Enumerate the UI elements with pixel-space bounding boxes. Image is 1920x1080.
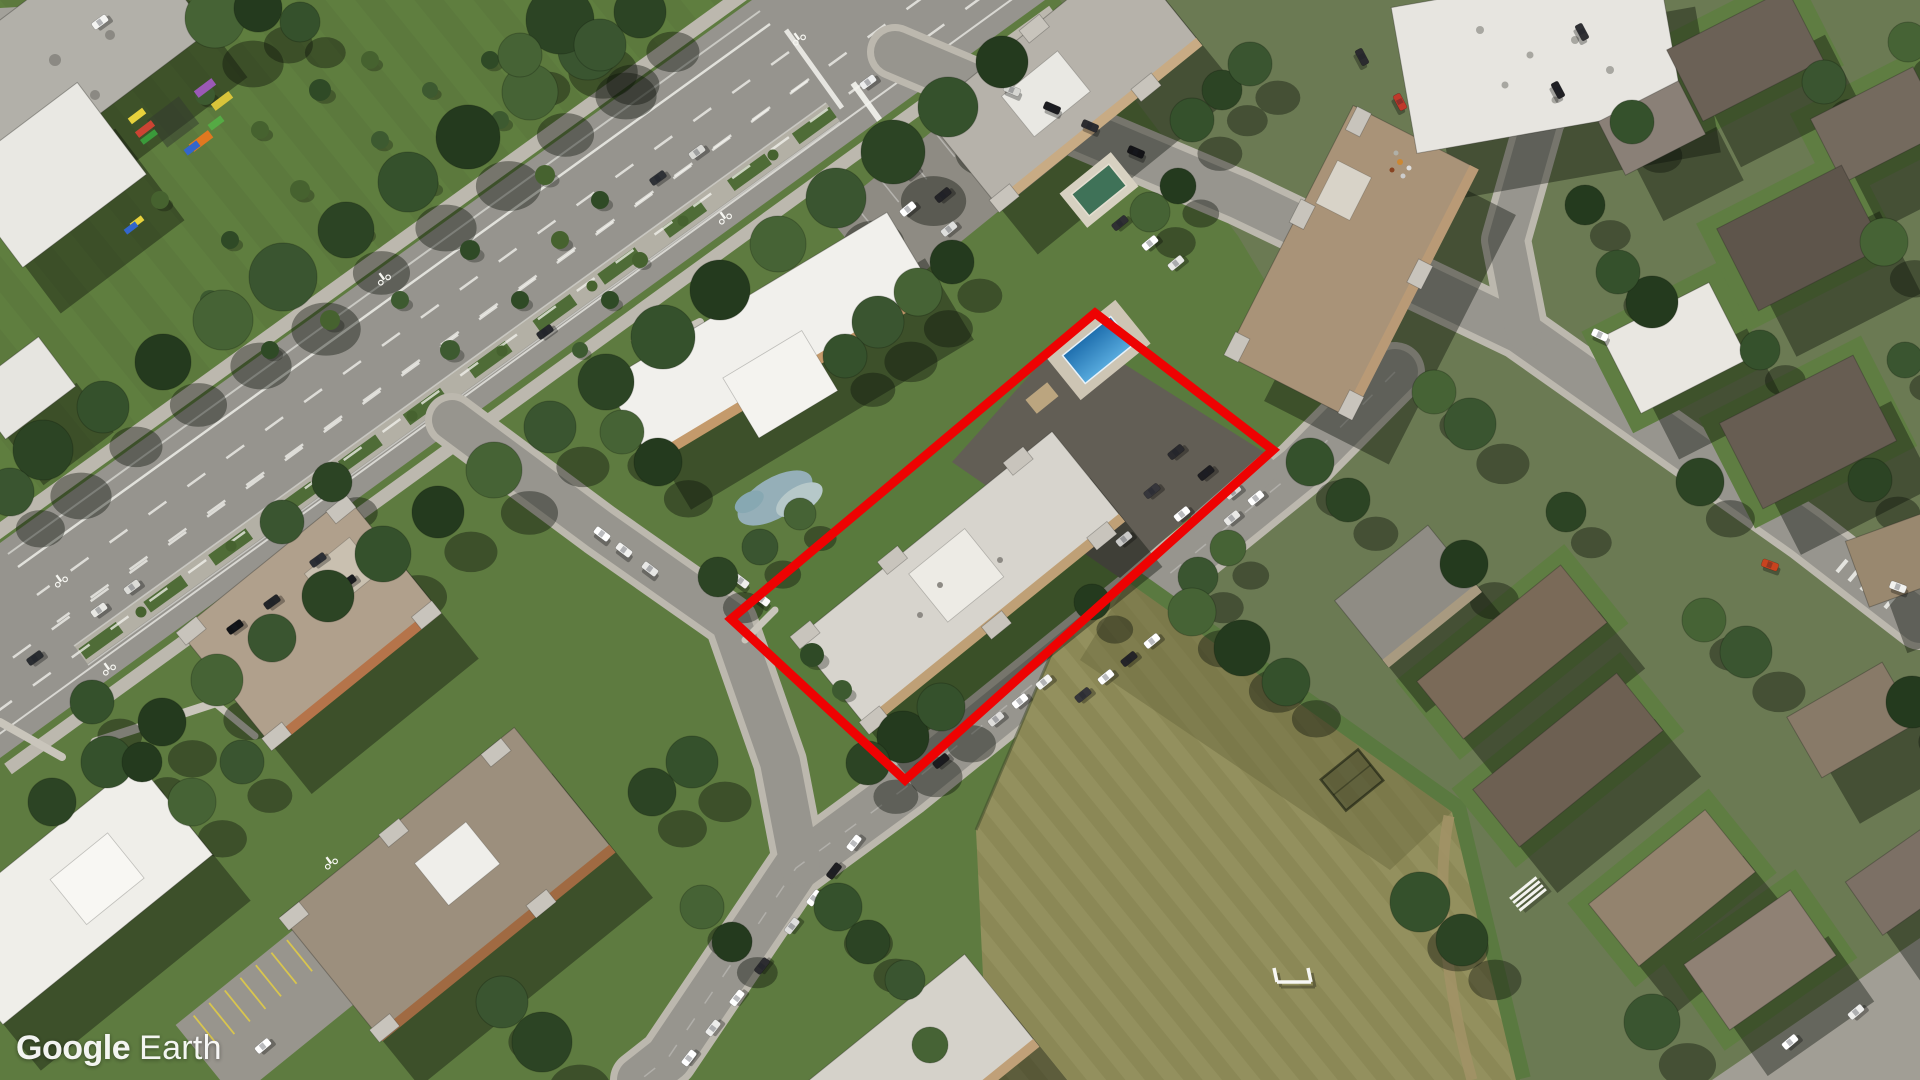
tree <box>28 778 76 826</box>
tree <box>498 33 542 77</box>
tree <box>378 152 438 212</box>
tree <box>1860 218 1908 266</box>
tree <box>466 442 522 498</box>
tree <box>666 736 718 788</box>
tree <box>1262 658 1310 706</box>
tree <box>861 120 925 184</box>
shrub <box>535 165 555 185</box>
tree <box>1168 588 1216 636</box>
tree <box>784 498 816 530</box>
tree <box>312 462 352 502</box>
tree <box>1444 398 1496 450</box>
tree <box>1802 60 1846 104</box>
shrub <box>290 180 310 200</box>
shrub <box>309 79 331 101</box>
google-earth-watermark: GoogleEarth <box>16 1029 222 1068</box>
tree <box>318 202 374 258</box>
shrub <box>601 291 619 309</box>
tree <box>436 105 500 169</box>
tree <box>823 334 867 378</box>
tree <box>1720 626 1772 678</box>
tree <box>600 410 644 454</box>
tree <box>476 976 528 1028</box>
tree <box>1676 458 1724 506</box>
tree <box>412 486 464 538</box>
shrub <box>361 51 379 69</box>
tree <box>806 168 866 228</box>
shrub <box>151 191 169 209</box>
tree <box>750 216 806 272</box>
watermark-brand: Google <box>16 1029 130 1067</box>
tree <box>698 557 738 597</box>
tree <box>168 778 216 826</box>
tree <box>249 243 317 311</box>
tree <box>1390 872 1450 932</box>
shrub <box>572 342 588 358</box>
tree <box>1624 994 1680 1050</box>
tree <box>1848 458 1892 502</box>
shrub <box>832 680 852 700</box>
tree <box>628 768 676 816</box>
tree <box>712 922 752 962</box>
tree <box>690 260 750 320</box>
tree <box>220 740 264 784</box>
tree <box>77 381 129 433</box>
tree <box>1228 42 1272 86</box>
tree <box>1610 100 1654 144</box>
shrub <box>632 252 648 268</box>
tree <box>355 526 411 582</box>
tree <box>631 305 695 369</box>
tree <box>1565 185 1605 225</box>
shrub <box>511 291 529 309</box>
tree <box>918 77 978 137</box>
tree <box>122 742 162 782</box>
tree <box>524 401 576 453</box>
tree <box>1740 330 1780 370</box>
tree <box>1210 530 1246 566</box>
watermark-product: Earth <box>139 1029 222 1067</box>
tree <box>248 614 296 662</box>
tree <box>917 683 965 731</box>
shrub <box>551 231 569 249</box>
shrub <box>261 341 279 359</box>
tree <box>1596 250 1640 294</box>
google-earth-viewport[interactable]: GoogleEarth <box>0 0 1920 1080</box>
tree <box>976 36 1028 88</box>
shrub <box>422 82 438 98</box>
shrub <box>481 51 499 69</box>
tree <box>1682 598 1726 642</box>
tree <box>280 2 320 42</box>
shrub <box>221 231 239 249</box>
tree <box>1887 342 1920 378</box>
tree <box>912 1027 948 1063</box>
tree <box>1214 620 1270 676</box>
tree <box>742 529 778 565</box>
tree <box>1440 540 1488 588</box>
tree <box>1546 492 1586 532</box>
tree <box>1412 370 1456 414</box>
tree <box>930 240 974 284</box>
tree <box>885 960 925 1000</box>
tree <box>1326 478 1370 522</box>
tree <box>70 680 114 724</box>
tree <box>302 570 354 622</box>
tree <box>1170 98 1214 142</box>
tree <box>191 654 243 706</box>
tree <box>578 354 634 410</box>
tree <box>260 500 304 544</box>
tree <box>193 290 253 350</box>
tree <box>680 885 724 929</box>
shrub <box>251 121 269 139</box>
tree <box>138 698 186 746</box>
tree <box>1286 438 1334 486</box>
shrub <box>320 310 340 330</box>
tree <box>512 1012 572 1072</box>
shrub <box>440 340 460 360</box>
shrub <box>371 131 389 149</box>
shrub <box>800 643 824 667</box>
shrub <box>460 240 480 260</box>
tree <box>634 438 682 486</box>
tree <box>1160 168 1196 204</box>
tree <box>846 920 890 964</box>
shrub <box>591 191 609 209</box>
satellite-imagery <box>0 0 1920 1080</box>
tree <box>135 334 191 390</box>
tree <box>1436 914 1488 966</box>
tree <box>574 19 626 71</box>
shrub <box>391 291 409 309</box>
